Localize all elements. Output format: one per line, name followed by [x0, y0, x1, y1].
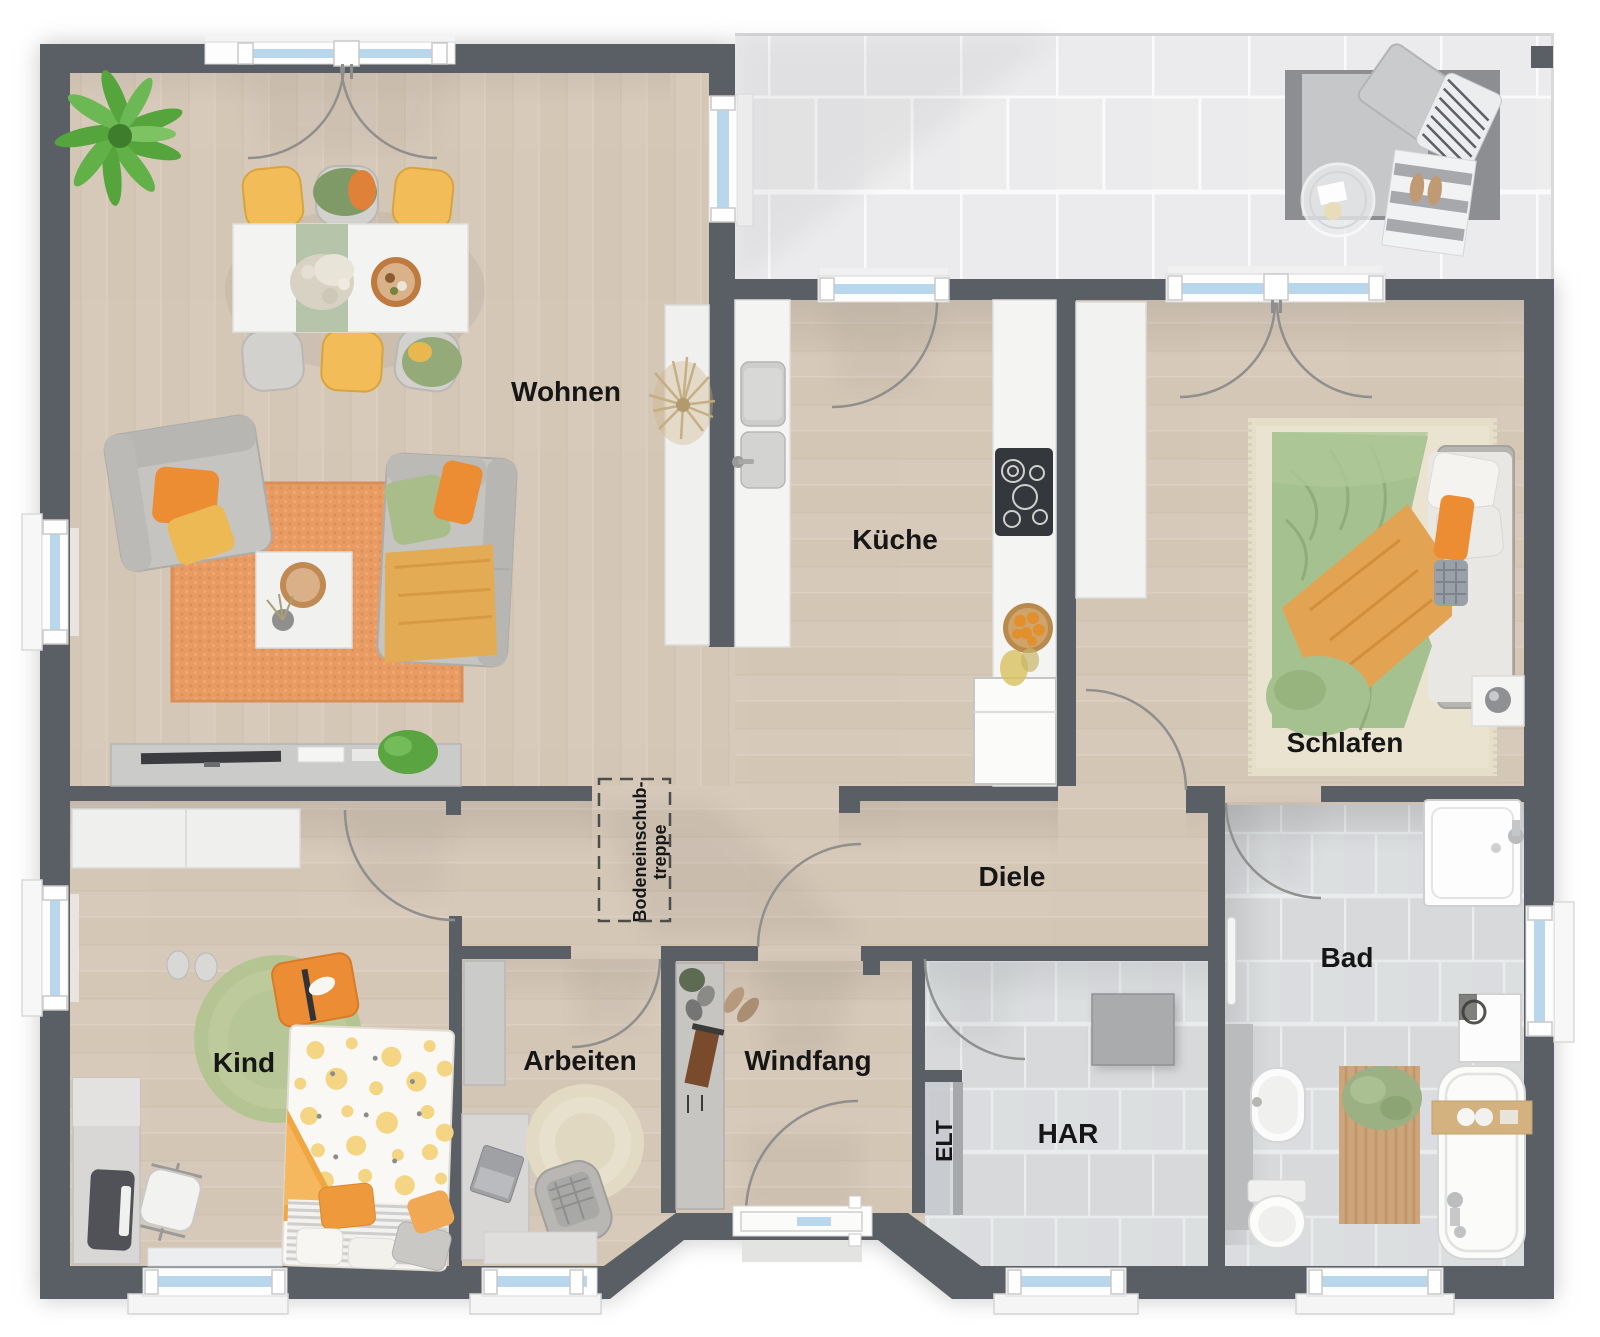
- svg-text:Kind: Kind: [213, 1047, 275, 1078]
- svg-text:Arbeiten: Arbeiten: [523, 1045, 637, 1076]
- svg-text:Windfang: Windfang: [744, 1045, 871, 1076]
- svg-text:Bad: Bad: [1321, 942, 1374, 973]
- svg-text:Küche: Küche: [852, 524, 938, 555]
- svg-text:ELT: ELT: [931, 1120, 957, 1162]
- svg-text:Wohnen: Wohnen: [511, 376, 621, 407]
- svg-text:treppe: treppe: [650, 824, 670, 879]
- svg-text:Diele: Diele: [979, 861, 1046, 892]
- svg-text:Schlafen: Schlafen: [1287, 727, 1404, 758]
- svg-text:HAR: HAR: [1038, 1118, 1099, 1149]
- svg-text:Bodeneinschub-: Bodeneinschub-: [630, 781, 650, 922]
